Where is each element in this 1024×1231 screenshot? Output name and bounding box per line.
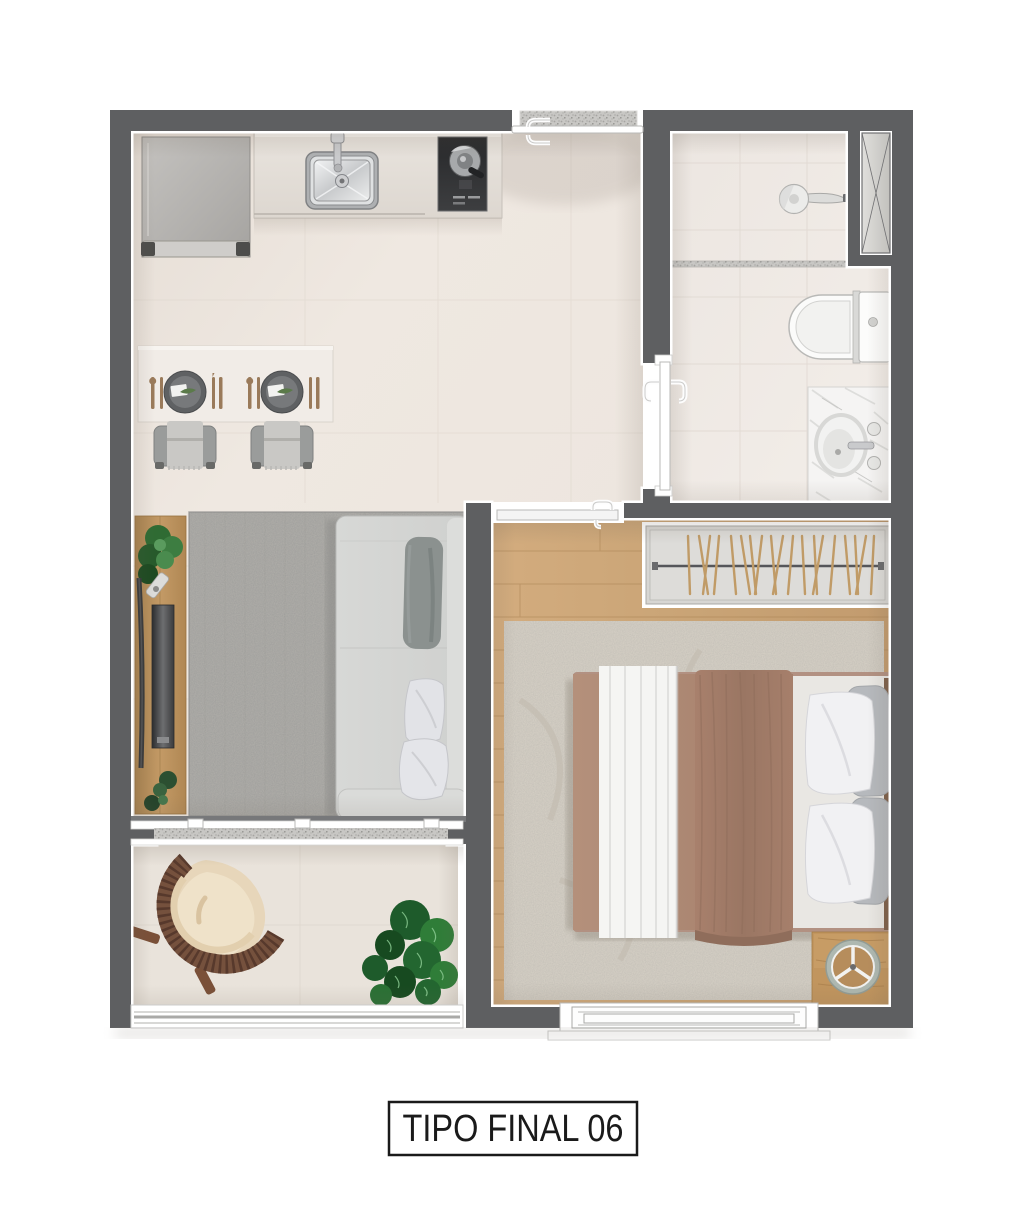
svg-text:TIPO FINAL 06: TIPO FINAL 06 bbox=[403, 1108, 624, 1150]
